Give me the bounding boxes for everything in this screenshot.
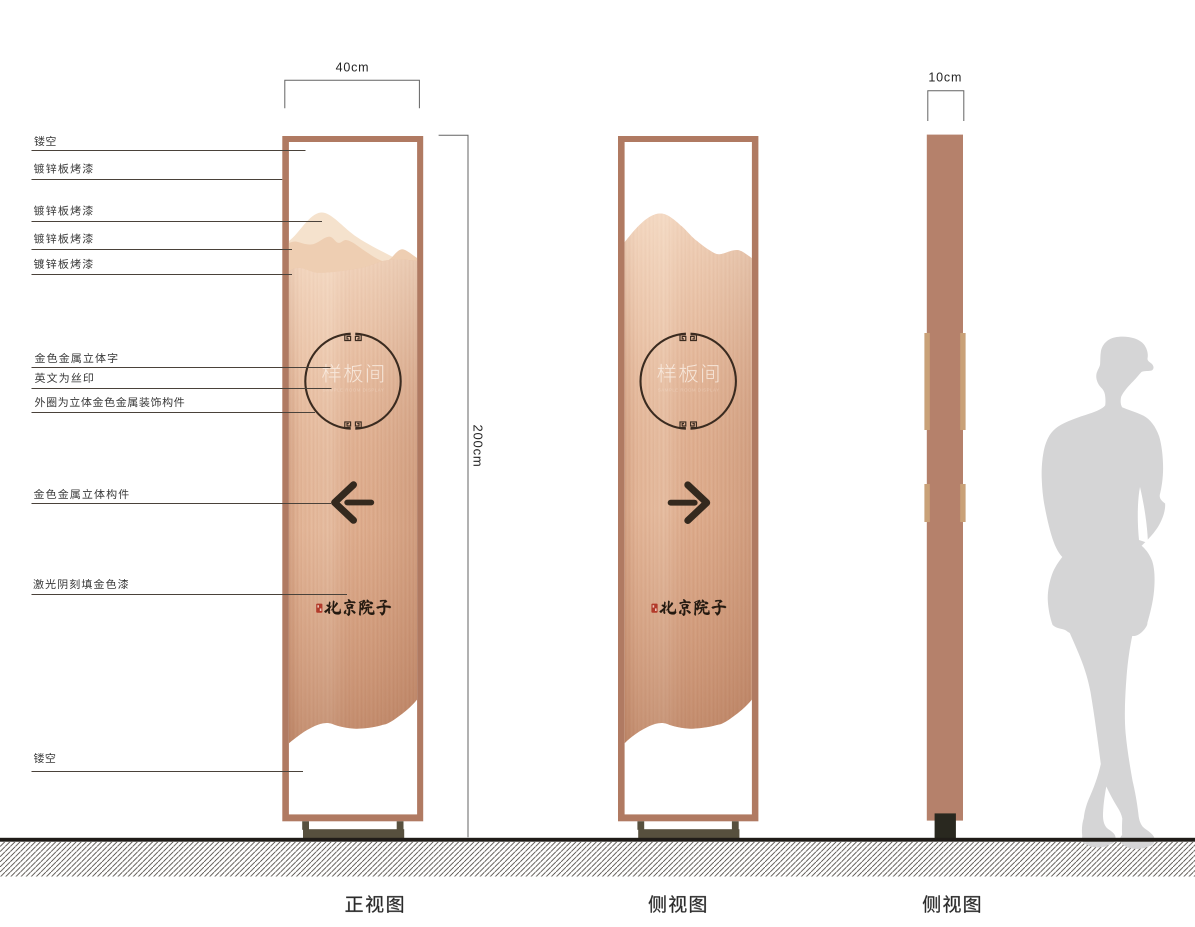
svg-text:10cm: 10cm: [928, 71, 962, 85]
svg-text:SAMPLE ROOM DISPLAY: SAMPLE ROOM DISPLAY: [323, 387, 385, 392]
svg-text:200cm: 200cm: [471, 425, 486, 468]
svg-text:40cm: 40cm: [336, 61, 370, 75]
svg-text:SAMPLE ROOM DISPLAY: SAMPLE ROOM DISPLAY: [658, 387, 720, 392]
